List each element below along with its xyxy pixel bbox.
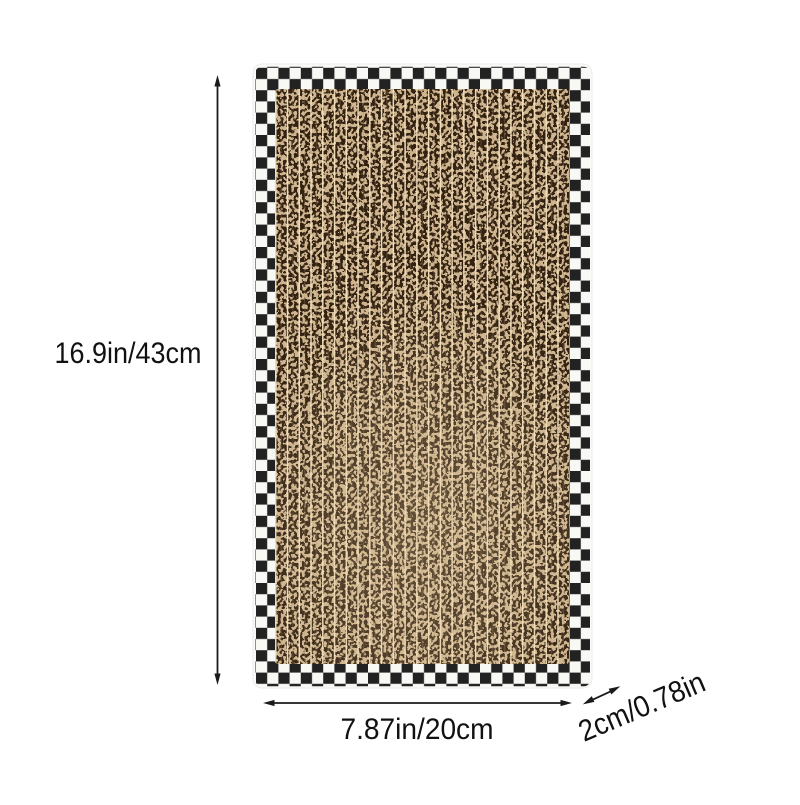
svg-text:7.87in/20cm: 7.87in/20cm bbox=[341, 713, 494, 746]
svg-text:16.9in/43cm: 16.9in/43cm bbox=[55, 337, 202, 370]
